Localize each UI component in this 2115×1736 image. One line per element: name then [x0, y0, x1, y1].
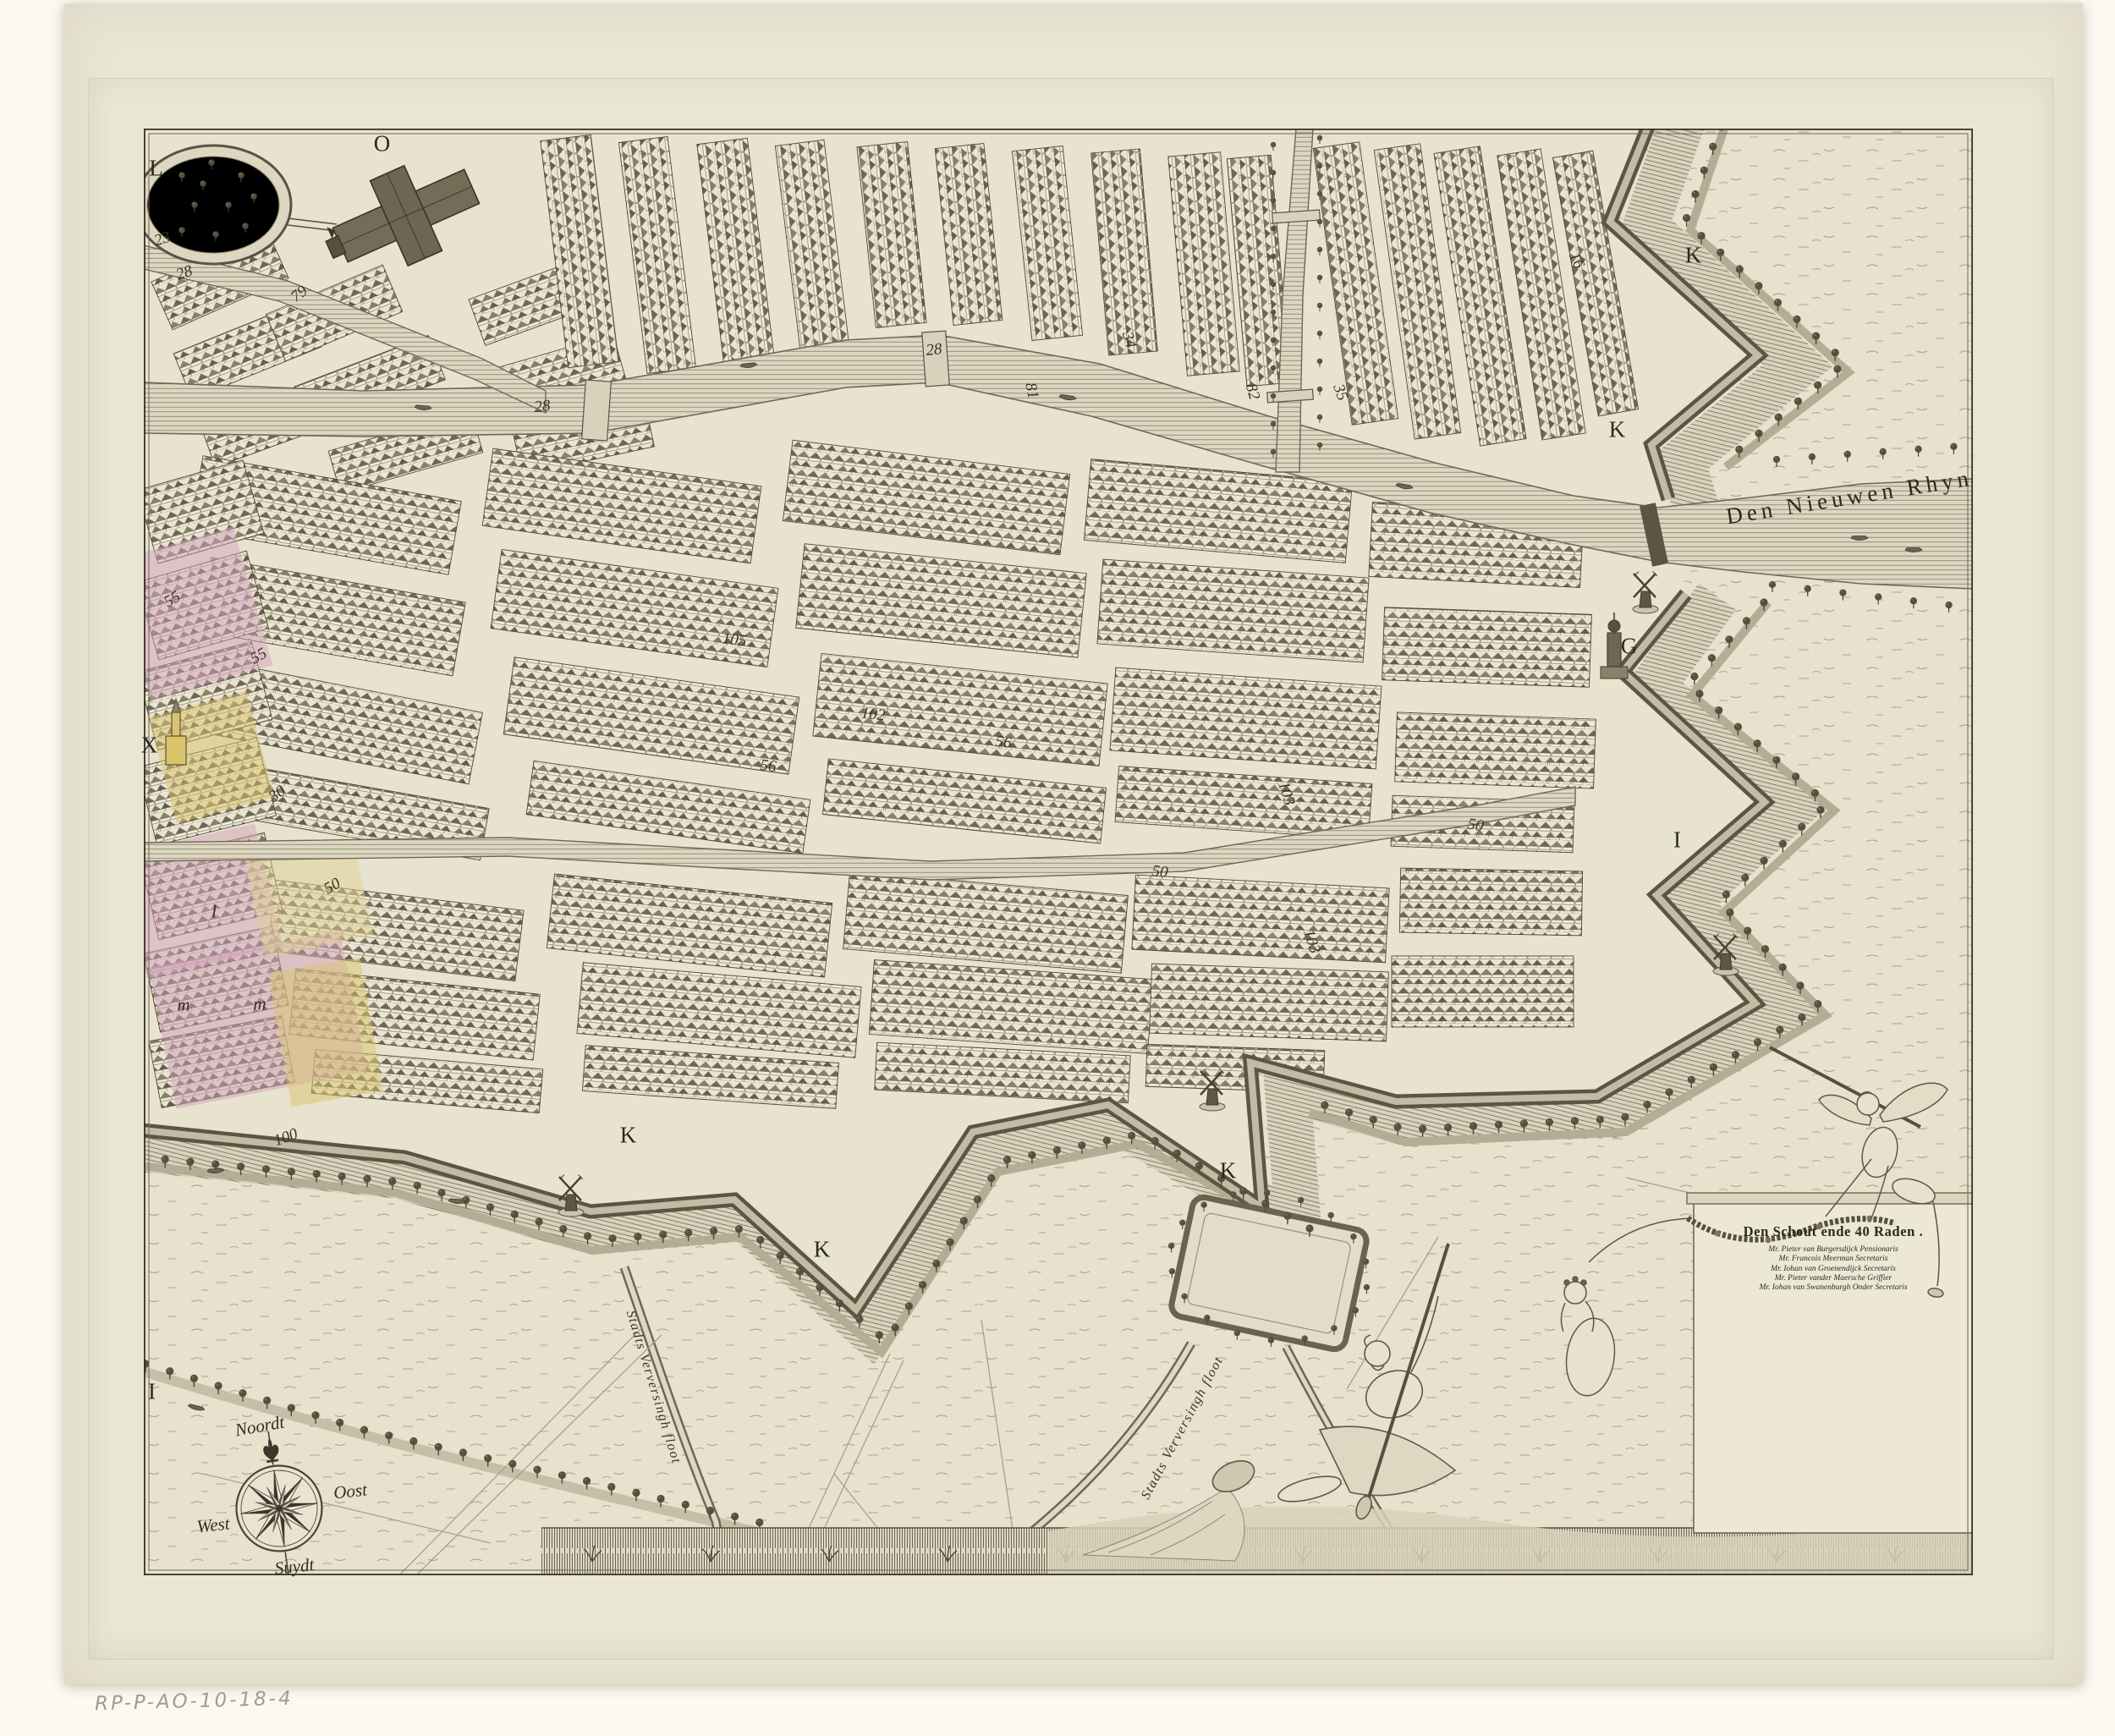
scanned-map-sheet: LOGXKKKKKIIlmm23282828795555305050505656… [0, 0, 2115, 1736]
legend-officer-entry: Mr. Pieter van Burgersdijck Pensionaris [1694, 1245, 1973, 1255]
legend-officer-entry: Mr. Iohan van Groenendijck Secretaris [1694, 1265, 1973, 1274]
legend-officer-entry: Mr. Pieter vander Maersche Griffier [1694, 1274, 1973, 1283]
legend-title: Den Schout ende 40 Raden . [1694, 1223, 1973, 1240]
legend-officers: Mr. Pieter van Burgersdijck PensionarisM… [1694, 1245, 1973, 1293]
legend-officer-entry: Mr. Francois Meerman Secretaris [1694, 1255, 1973, 1264]
legend-cartouche: Den Schout ende 40 Raden . Mr. Pieter va… [1694, 1201, 1973, 1533]
legend-officer-entry: Mr. Iohan van Swanenburgh Onder Secretar… [1694, 1283, 1973, 1293]
